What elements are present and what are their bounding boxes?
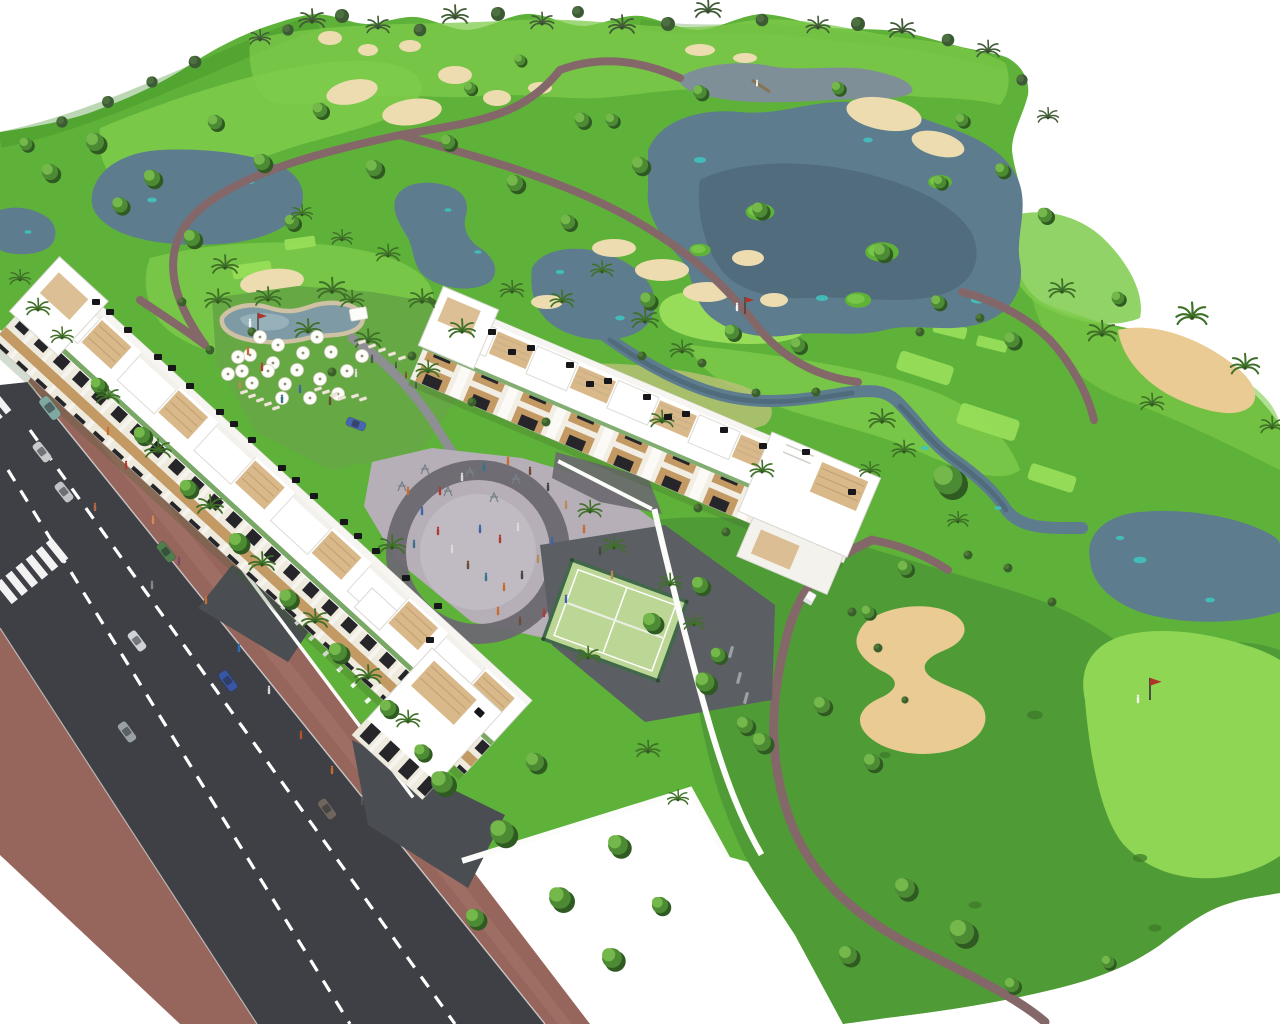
plaza-inner-disc bbox=[420, 494, 536, 610]
aerial-render-canvas bbox=[0, 0, 1280, 1024]
architectural-rendering bbox=[0, 0, 1280, 1024]
pool-pavilion bbox=[349, 307, 368, 322]
